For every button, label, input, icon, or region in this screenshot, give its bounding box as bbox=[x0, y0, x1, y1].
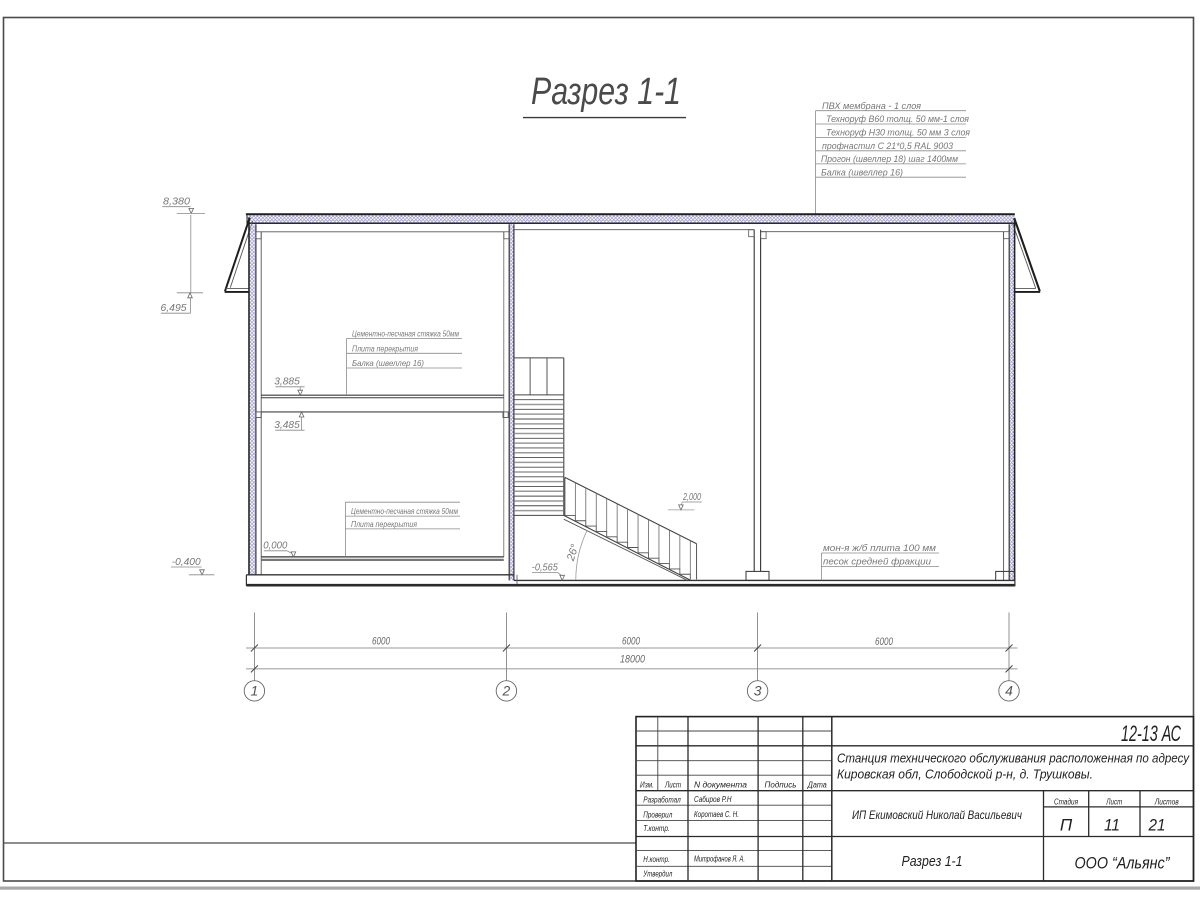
svg-text:6,495: 6,495 bbox=[161, 302, 187, 314]
svg-text:3,485: 3,485 bbox=[274, 419, 300, 431]
svg-text:П: П bbox=[1060, 816, 1073, 835]
svg-text:Лист: Лист bbox=[1106, 797, 1123, 806]
svg-text:2,000: 2,000 bbox=[682, 491, 701, 503]
svg-text:Н.контр.: Н.контр. bbox=[643, 855, 670, 864]
svg-text:3,885: 3,885 bbox=[274, 376, 300, 388]
svg-text:Станция технического обслужива: Станция технического обслуживания распол… bbox=[837, 751, 1190, 766]
svg-text:мон-я ж/б плита 100 мм: мон-я ж/б плита 100 мм bbox=[823, 543, 936, 554]
svg-text:профнастил С 21*0,5 RAL 9003: профнастил С 21*0,5 RAL 9003 bbox=[822, 141, 954, 152]
svg-text:Плита перекрытия: Плита перекрытия bbox=[351, 519, 417, 529]
svg-text:песок средней фракции: песок средней фракции bbox=[823, 556, 932, 567]
svg-text:Разрез 1-1: Разрез 1-1 bbox=[531, 71, 681, 113]
svg-text:Плита перекрытия: Плита перекрытия bbox=[352, 343, 418, 353]
svg-text:Дата: Дата bbox=[807, 781, 827, 790]
svg-text:11: 11 bbox=[1104, 816, 1120, 835]
svg-text:6000: 6000 bbox=[875, 636, 894, 648]
svg-text:Стадия: Стадия bbox=[1054, 797, 1079, 806]
svg-text:Прогон (швеллер 18) шаг 1400мм: Прогон (швеллер 18) шаг 1400мм bbox=[821, 154, 958, 165]
svg-text:Цементно-песчаная стяжка 50мм: Цементно-песчаная стяжка 50мм bbox=[352, 329, 459, 339]
svg-text:1: 1 bbox=[251, 683, 259, 699]
svg-text:21: 21 bbox=[1148, 816, 1166, 835]
svg-text:N документа: N документа bbox=[694, 781, 748, 790]
svg-text:18000: 18000 bbox=[620, 654, 646, 666]
svg-text:Изм.: Изм. bbox=[640, 781, 654, 790]
svg-text:Лист: Лист bbox=[664, 781, 681, 790]
svg-text:Листов: Листов bbox=[1154, 797, 1179, 806]
svg-text:Балка (швеллер 16): Балка (швеллер 16) bbox=[821, 167, 903, 178]
svg-text:0,000: 0,000 bbox=[263, 540, 287, 552]
svg-text:Цементно-песчаная стяжка 50мм: Цементно-песчаная стяжка 50мм bbox=[351, 506, 458, 516]
svg-text:ПВХ мембрана - 1 слоя: ПВХ мембрана - 1 слоя bbox=[822, 101, 921, 112]
svg-text:Т.контр.: Т.контр. bbox=[643, 824, 670, 833]
svg-text:Подпись: Подпись bbox=[765, 781, 797, 790]
svg-text:3: 3 bbox=[754, 683, 762, 699]
svg-text:Разрез 1-1: Разрез 1-1 bbox=[902, 853, 963, 870]
svg-text:-0,400: -0,400 bbox=[172, 556, 201, 568]
svg-text:Проверил: Проверил bbox=[643, 810, 672, 819]
svg-text:Сабиров Р.Н: Сабиров Р.Н bbox=[694, 795, 732, 804]
svg-text:ООО “Альянс”: ООО “Альянс” bbox=[1075, 853, 1171, 872]
svg-text:Утвердил: Утвердил bbox=[643, 869, 673, 878]
svg-text:Балка (швеллер 16): Балка (швеллер 16) bbox=[352, 358, 424, 368]
svg-text:Коротаев С. Н.: Коротаев С. Н. bbox=[694, 810, 739, 819]
svg-text:Митрофанов Я. А.: Митрофанов Я. А. bbox=[694, 855, 745, 864]
svg-text:12-13 АС: 12-13 АС bbox=[1121, 721, 1181, 746]
svg-text:-0,565: -0,565 bbox=[532, 562, 558, 574]
svg-text:6000: 6000 bbox=[622, 636, 641, 648]
svg-text:2: 2 bbox=[502, 683, 511, 699]
svg-text:Разработал: Разработал bbox=[643, 796, 681, 805]
svg-text:Техноруф Н30 толщ. 50 мм 3 сло: Техноруф Н30 толщ. 50 мм 3 слоя bbox=[826, 128, 970, 139]
svg-text:ИП Екимовский Николай Васильев: ИП Екимовский Николай Васильевич bbox=[852, 808, 1022, 822]
svg-text:Кировская обл, Слободской р-н,: Кировская обл, Слободской р-н, д. Трушко… bbox=[837, 766, 1093, 781]
svg-text:4: 4 bbox=[1005, 683, 1013, 699]
svg-text:8,380: 8,380 bbox=[163, 196, 190, 208]
svg-text:6000: 6000 bbox=[372, 636, 391, 648]
svg-text:Техноруф В60 толщ. 50 мм-1 сло: Техноруф В60 толщ. 50 мм-1 слоя bbox=[826, 114, 969, 125]
